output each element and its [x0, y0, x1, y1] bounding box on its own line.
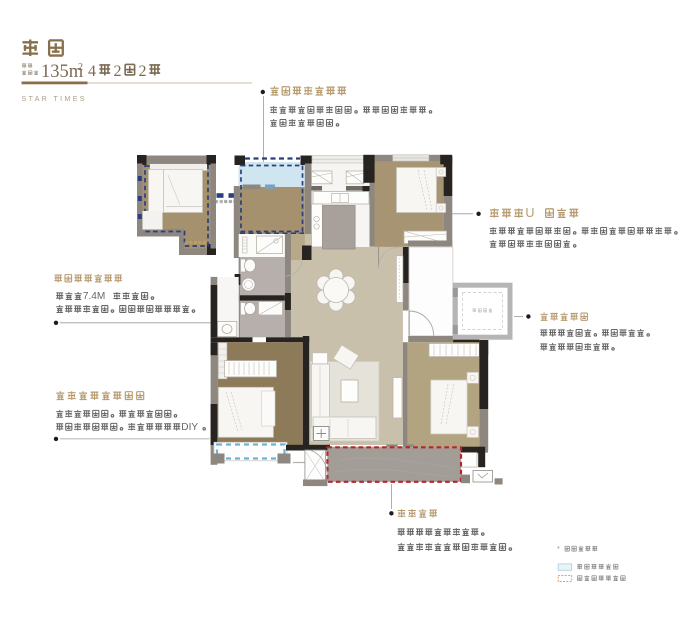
svg-text:2: 2: [139, 63, 147, 80]
svg-text:2: 2: [114, 63, 122, 80]
svg-text:DIY: DIY: [181, 422, 198, 433]
svg-text:U: U: [525, 206, 534, 220]
svg-text:2: 2: [78, 62, 83, 73]
svg-text:*: *: [557, 546, 560, 553]
svg-text:STAR TIMES: STAR TIMES: [22, 96, 87, 103]
svg-text:7.4M: 7.4M: [83, 291, 105, 302]
svg-text:4: 4: [88, 63, 96, 80]
